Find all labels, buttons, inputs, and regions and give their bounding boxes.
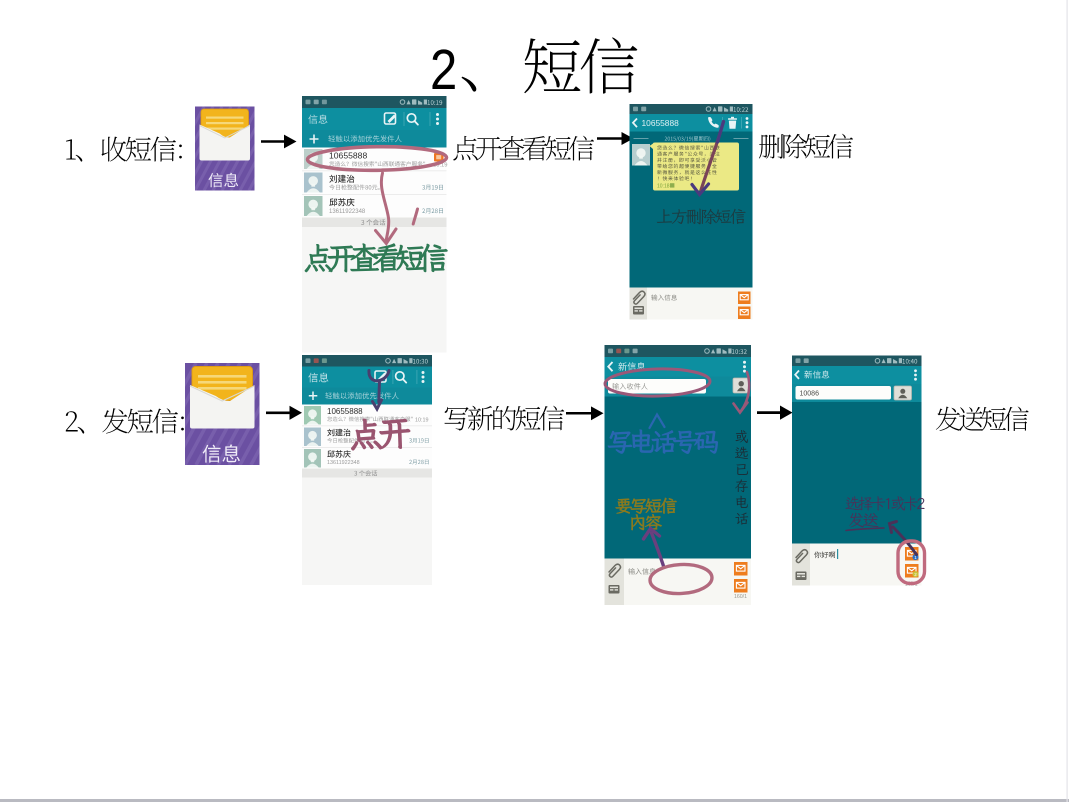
svg-text:10655888: 10655888 <box>327 407 363 416</box>
svg-text:2: 2 <box>430 39 457 102</box>
svg-text:10655888: 10655888 <box>642 118 680 128</box>
svg-text:10655888: 10655888 <box>329 151 367 161</box>
svg-text:10086: 10086 <box>800 391 820 398</box>
svg-text:13611922348: 13611922348 <box>329 209 366 215</box>
svg-text:10:18: 10:18 <box>657 184 670 190</box>
svg-text:160/1: 160/1 <box>734 594 747 600</box>
svg-text:10:19: 10:19 <box>415 418 429 424</box>
svg-text:13611922348: 13611922348 <box>327 460 360 466</box>
